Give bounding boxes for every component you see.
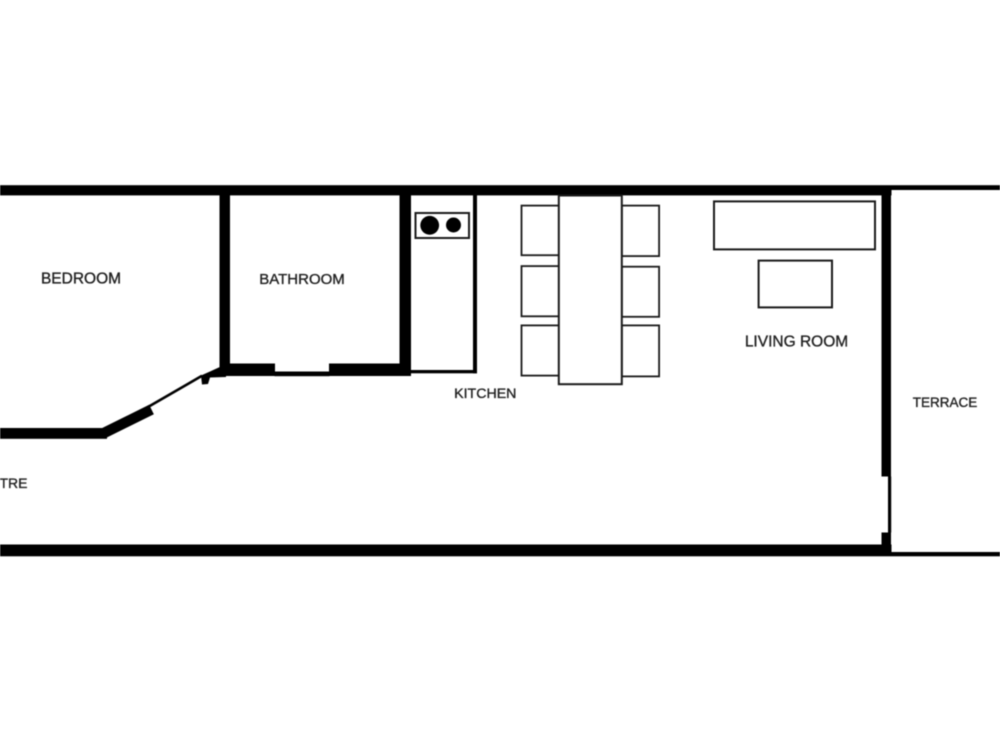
svg-text:KITCHEN: KITCHEN [454, 386, 516, 402]
svg-text:TERRACE: TERRACE [913, 395, 978, 410]
svg-text:TRE: TRE [0, 475, 28, 491]
svg-text:LIVING ROOM: LIVING ROOM [745, 334, 848, 351]
svg-text:BATHROOM: BATHROOM [259, 271, 345, 288]
svg-text:BEDROOM: BEDROOM [41, 271, 121, 288]
